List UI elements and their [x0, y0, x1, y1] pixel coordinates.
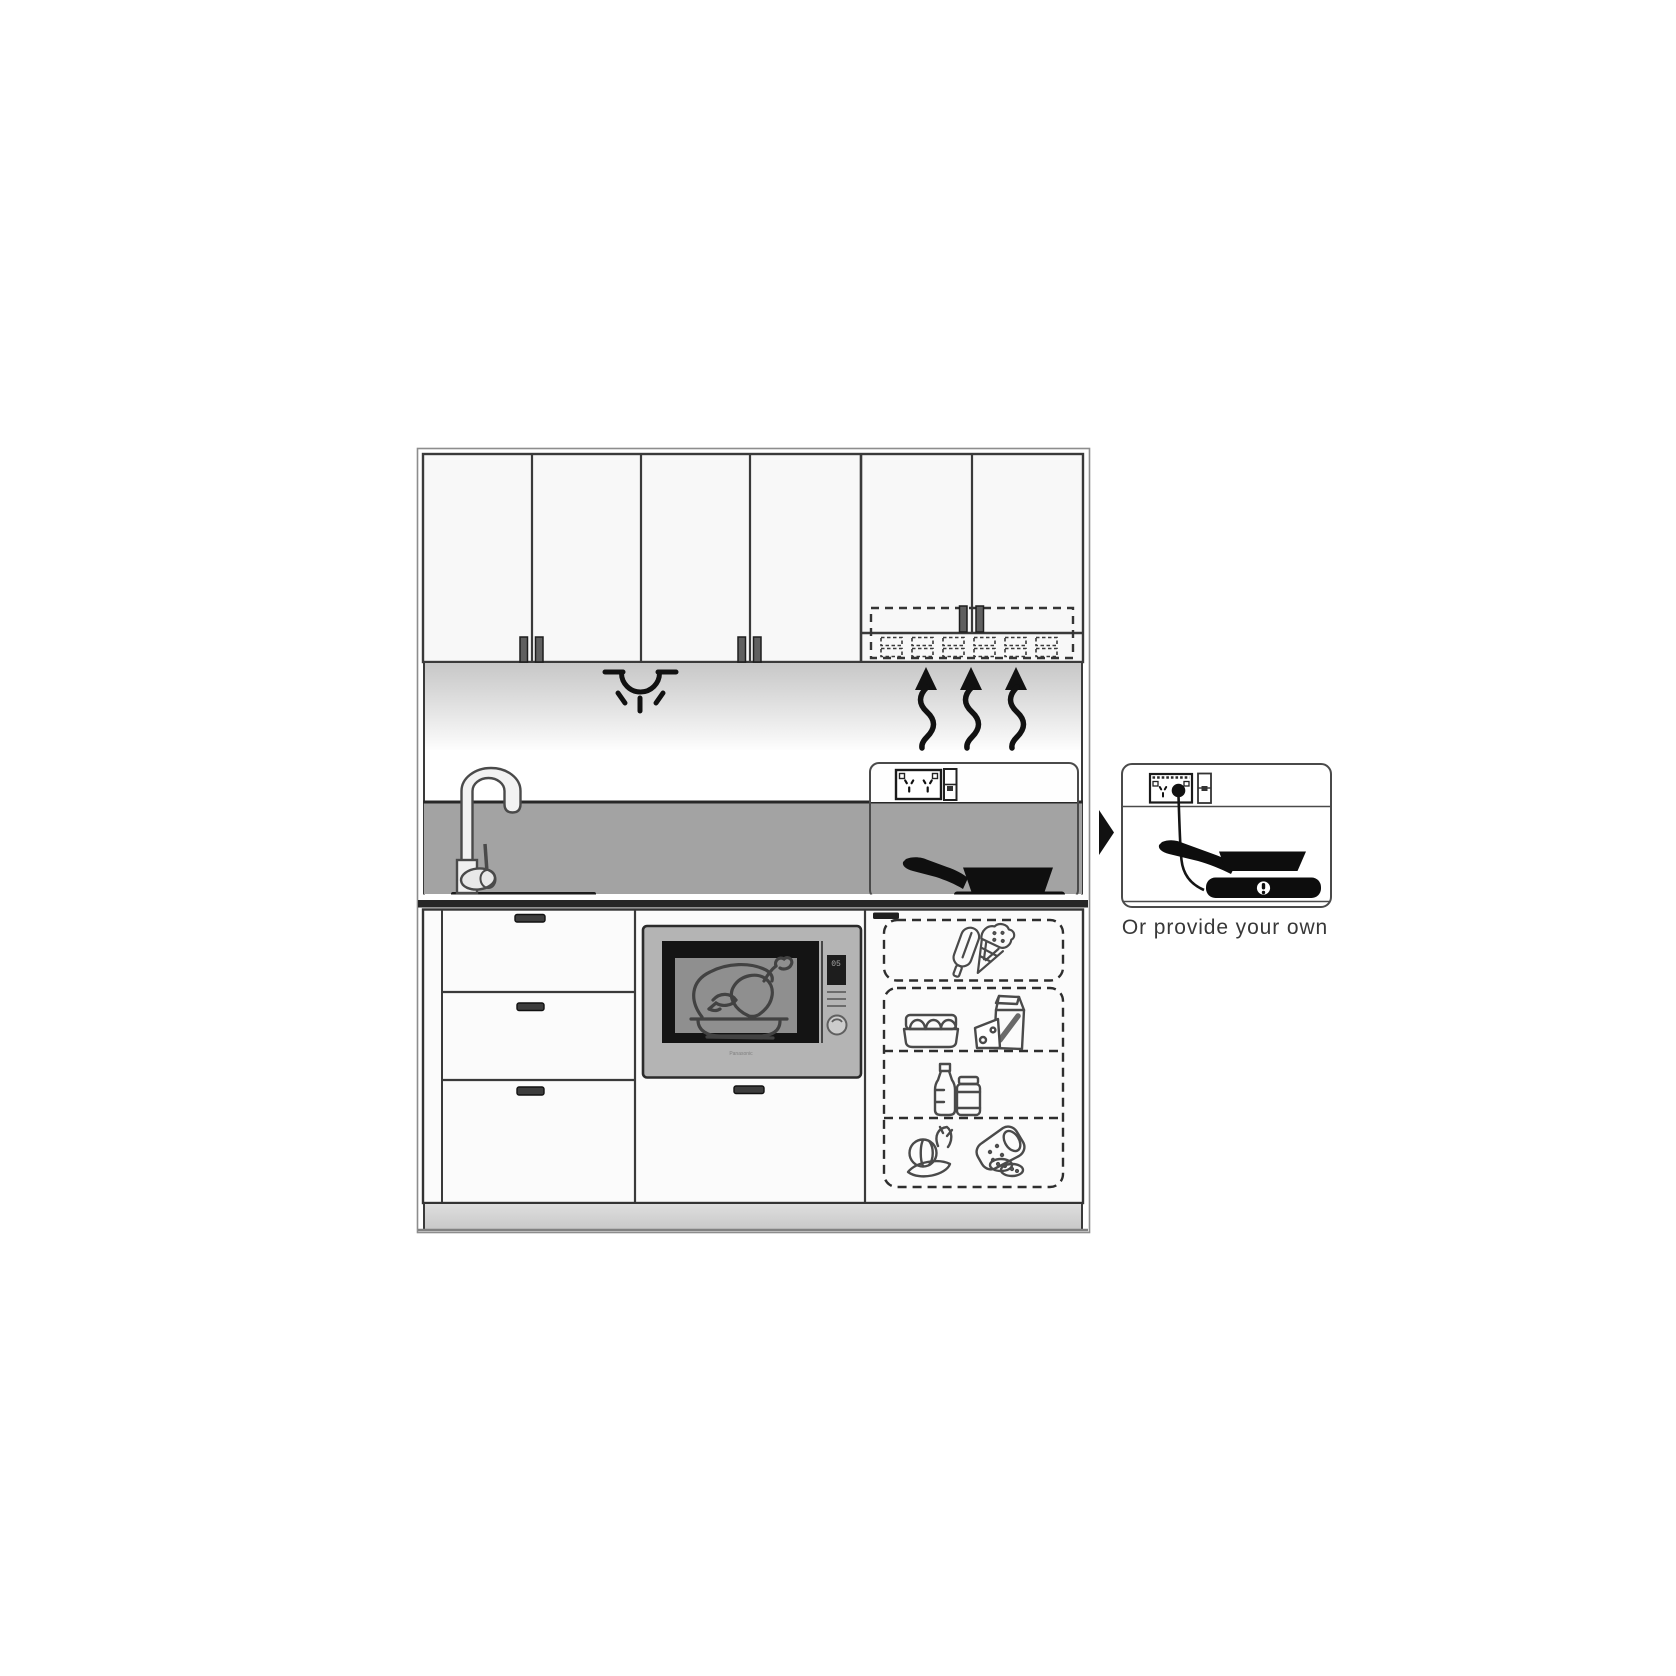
svg-text:Or provide your own: Or provide your own [1122, 916, 1328, 939]
svg-text:Panasonic: Panasonic [729, 1051, 753, 1057]
svg-text:05: 05 [831, 960, 841, 969]
